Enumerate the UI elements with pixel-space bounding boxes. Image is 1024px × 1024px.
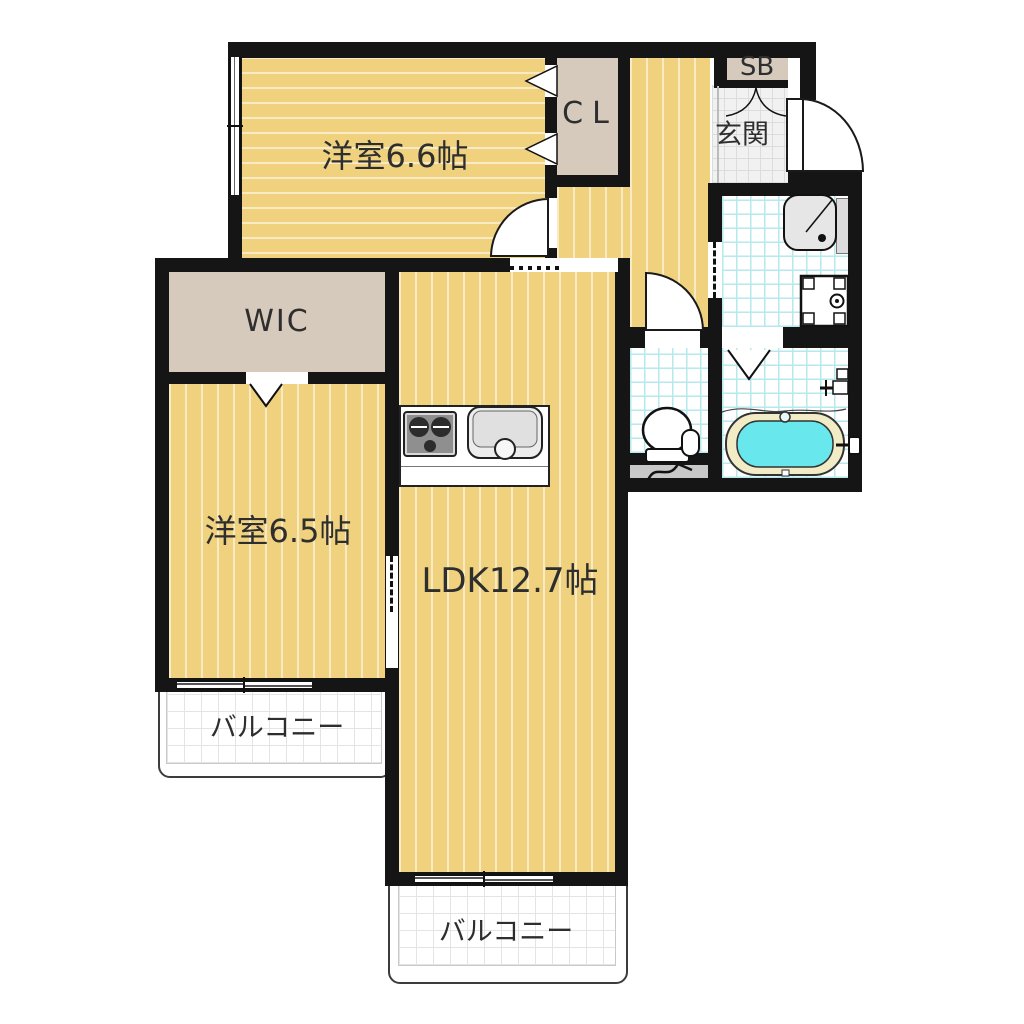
pipe-space: [630, 465, 708, 478]
entrance-door-leaf: [786, 98, 804, 172]
window-center-tick: [483, 871, 485, 887]
washroom-floor: [722, 196, 848, 327]
wall: [545, 175, 630, 187]
wall: [800, 42, 816, 100]
room-label-western-room-1: 洋室6.6帖: [322, 140, 469, 172]
hallway-floor-west: [557, 187, 630, 258]
wall: [615, 453, 722, 465]
room-label-ldk: LDK12.7帖: [421, 564, 598, 598]
sliding-door-track: [390, 556, 393, 612]
window-room1-west: [229, 57, 241, 195]
sliding-door-washroom: [708, 242, 722, 298]
window-pane-line: [177, 683, 244, 685]
hanging-wall-dots: [510, 266, 562, 270]
room-label-closet: CL: [562, 99, 618, 129]
room-label-balcony-bottom: バルコニー: [439, 919, 573, 946]
wall: [708, 183, 862, 196]
window-center-tick: [227, 125, 243, 127]
wall: [618, 57, 630, 186]
kitchen-counter: [399, 405, 550, 487]
wall: [615, 478, 862, 492]
window-pane-line: [415, 877, 484, 879]
sliding-door-track: [713, 242, 716, 298]
window-ldk-balcony: [415, 874, 553, 884]
kitchen-counter-edge: [401, 466, 548, 467]
wall: [155, 258, 169, 692]
window-pane-line: [244, 685, 312, 687]
room-label-entrance: 玄関: [715, 122, 769, 149]
floor-plan: 洋室6.6帖 CL SB 玄関 WIC 洋室6.5帖 LDK12.7帖 バルコニ…: [0, 0, 1024, 1024]
hanging-wall-opening: [510, 258, 562, 272]
wall: [228, 42, 816, 58]
room-label-western-room-2: 洋室6.5帖: [205, 515, 352, 547]
bath-door-gap: [722, 327, 783, 348]
toilet-floor: [630, 348, 708, 453]
wall: [615, 492, 628, 886]
sliding-door-room2-ldk: [386, 556, 398, 668]
room-label-shoe-box: SB: [740, 54, 774, 80]
window-room2-balcony: [177, 680, 312, 690]
room-label-wic: WIC: [244, 307, 309, 337]
closet-door-gap: [545, 65, 557, 97]
door-swing-entrance: [800, 98, 864, 172]
closet-door-gap: [545, 133, 557, 165]
bathroom-floor: [722, 348, 848, 478]
window-pane-line: [484, 879, 553, 881]
wic-door-gap: [246, 372, 308, 384]
ldk-entry-opening: [562, 258, 618, 272]
window-center-tick: [243, 677, 245, 693]
room-label-balcony-left: バルコニー: [210, 715, 344, 742]
